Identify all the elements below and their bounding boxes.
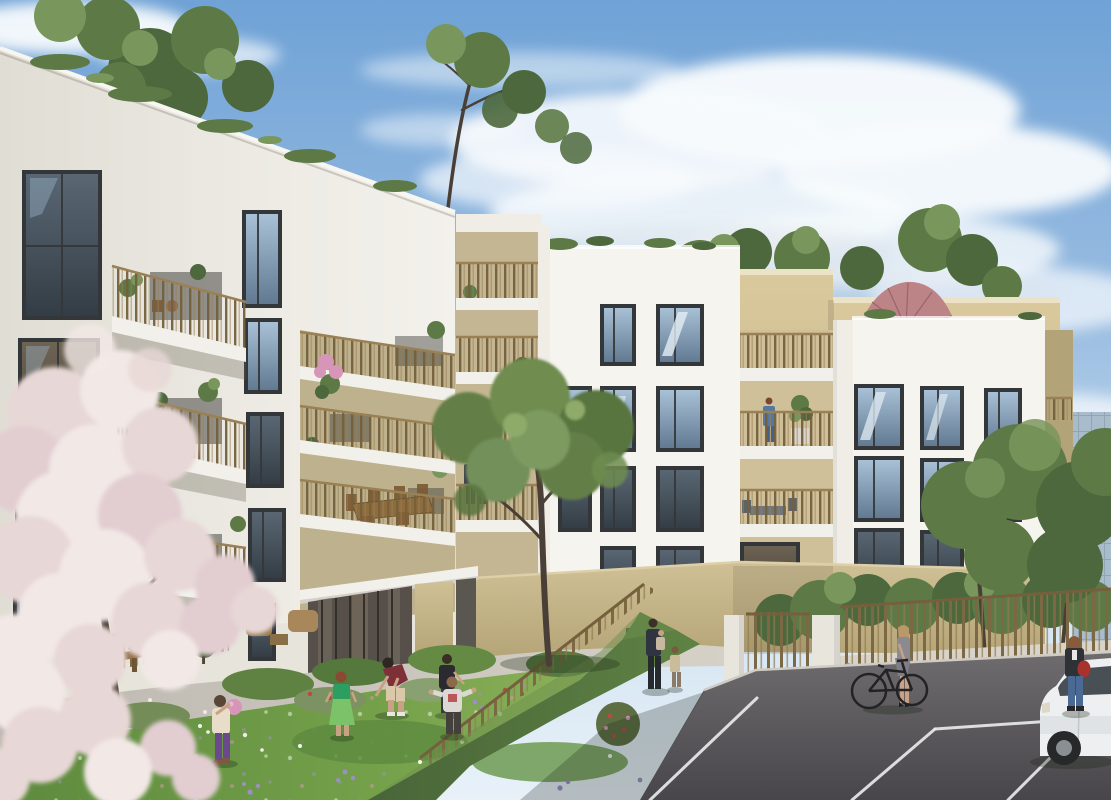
rendering-canvas — [0, 0, 1111, 800]
scene — [0, 0, 1111, 800]
red-handbag — [1078, 661, 1091, 678]
